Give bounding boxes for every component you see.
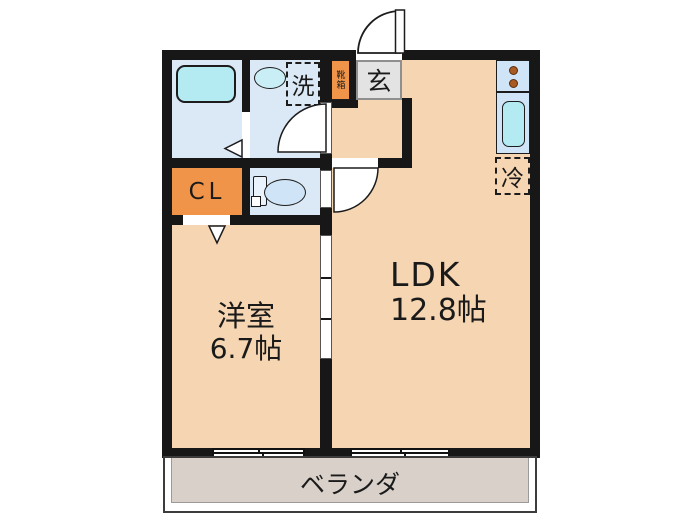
kitchen-divider [496,91,530,93]
stove-burner-icon [509,66,518,75]
wall-shoebox-stub [332,100,358,108]
entrance: 玄 [356,60,402,100]
wall-top [162,50,540,60]
western-room-size: 6.7帖 [168,333,324,365]
stove-burner-icon [509,79,518,88]
washer-space: 洗 [286,62,320,106]
entrance-opening [356,50,402,60]
wall-hall-vertical [402,98,412,168]
veranda: ベランダ [163,456,537,513]
closet-label: CL [189,179,226,205]
washer-label: 洗 [292,67,315,101]
hall-door-opening [332,158,378,168]
washbasin-icon [254,67,286,89]
closet-door-opening [183,215,230,225]
toilet-door [320,170,332,208]
toilet-flush-icon [251,196,261,207]
entrance-label: 玄 [366,62,391,98]
fridge-label: 冷 [501,159,524,193]
shoe-box: 靴箱 [330,60,350,100]
floor-plan: 洗 CL 靴箱 玄 冷 [0,0,700,525]
entrance-door-arc [358,11,400,53]
wall-left [162,50,172,458]
fridge-space: 冷 [495,157,530,195]
toilet-bowl-icon [264,179,306,206]
western-room-name: 洋室 [168,300,324,333]
wall-wet-bottom [162,158,320,168]
wall-right [530,50,540,458]
western-room-label: 洋室 6.7帖 [168,300,324,366]
bathroom-door-opening [242,112,250,158]
closet: CL [172,168,242,215]
ldk-name: LDK [390,256,530,294]
bathtub-icon [176,65,236,103]
ldk-label: LDK 12.8帖 [390,256,530,328]
wall-entry-strip [350,60,356,100]
washroom-door [320,102,332,154]
kitchen-sink-icon [502,101,525,147]
ldk-size: 12.8帖 [390,294,530,329]
entrance-door-leaf [396,10,405,53]
shoe-box-label: 靴箱 [334,70,347,90]
veranda-label: ベランダ [300,465,400,501]
